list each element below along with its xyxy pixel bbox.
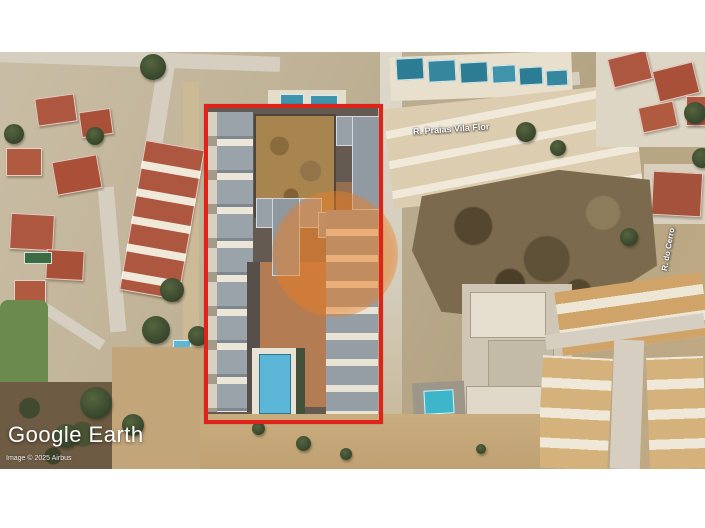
- resort-pool: [427, 59, 456, 82]
- highlighted-area-outline: [204, 104, 383, 424]
- garden-lawn: [0, 300, 48, 392]
- terracotta-roof-house: [51, 154, 102, 195]
- road: [98, 187, 127, 333]
- shrub: [340, 448, 352, 460]
- garden-pool: [24, 252, 52, 264]
- resort-pool: [519, 66, 544, 85]
- tree: [140, 54, 166, 80]
- terracotta-roof-house: [9, 213, 55, 251]
- shrub: [476, 444, 486, 454]
- tree: [142, 316, 170, 344]
- street-label-right: R. do Cerro: [660, 227, 676, 271]
- gold-roof-houses: [537, 355, 613, 469]
- resort-pool: [492, 64, 517, 83]
- tree: [684, 102, 705, 124]
- terracotta-roof-house: [34, 93, 78, 126]
- copyright-text: Image © 2025 Airbus: [6, 455, 71, 462]
- resort-pool: [395, 57, 424, 80]
- road: [610, 340, 644, 469]
- tree: [86, 127, 104, 145]
- tree: [516, 122, 536, 142]
- gold-roof-houses: [646, 356, 705, 469]
- terracotta-roof-house: [6, 148, 42, 176]
- shrub: [296, 436, 311, 451]
- resort-pool: [459, 61, 488, 83]
- red-villa-roof: [651, 171, 703, 218]
- sandy-terrain: [112, 347, 207, 469]
- tree: [160, 278, 184, 302]
- screenshot-frame: R. Praias Vila Flor R. do Cerro Google E…: [0, 0, 705, 528]
- tree: [620, 228, 638, 246]
- tree: [4, 124, 24, 144]
- tree: [550, 140, 566, 156]
- satellite-map: R. Praias Vila Flor R. do Cerro Google E…: [0, 52, 705, 469]
- white-building: [470, 292, 546, 338]
- tree: [80, 387, 112, 419]
- tree: [692, 148, 705, 168]
- small-pool: [423, 389, 454, 415]
- resort-pool: [546, 69, 569, 86]
- google-earth-logo: Google Earth: [8, 422, 144, 448]
